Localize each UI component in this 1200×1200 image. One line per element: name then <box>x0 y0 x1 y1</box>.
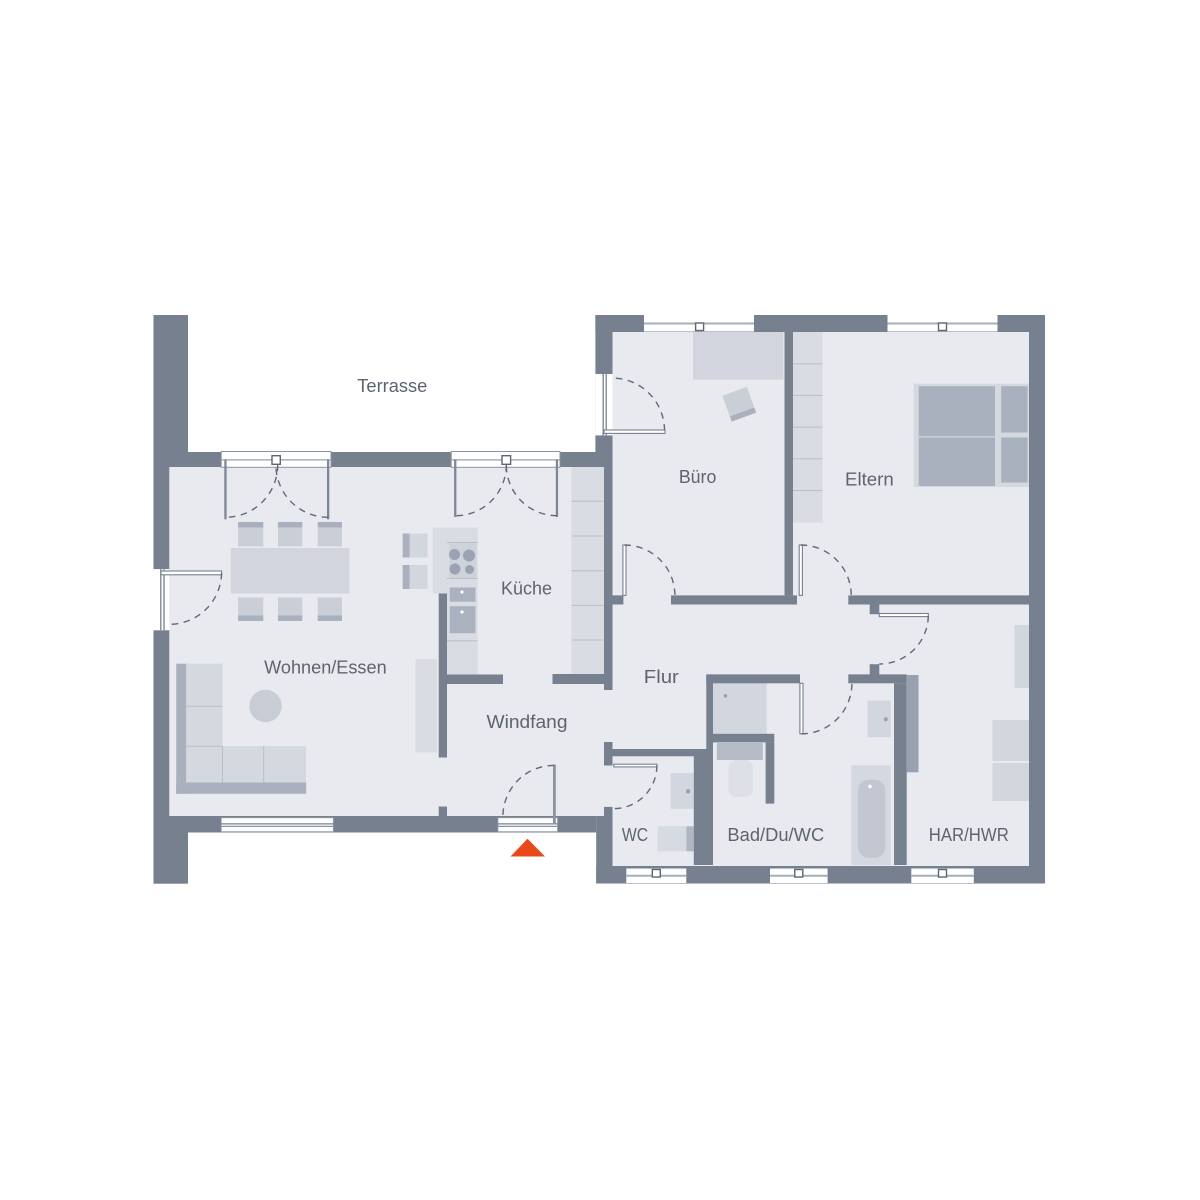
svg-text:Windfang: Windfang <box>487 712 568 732</box>
svg-text:Eltern: Eltern <box>845 470 894 490</box>
svg-text:Wohnen/Essen: Wohnen/Essen <box>264 658 387 678</box>
svg-text:WC: WC <box>622 825 648 845</box>
svg-text:Küche: Küche <box>501 579 552 599</box>
svg-text:Bad/Du/WC: Bad/Du/WC <box>727 825 824 845</box>
svg-text:HAR/HWR: HAR/HWR <box>929 825 1009 845</box>
svg-text:Flur: Flur <box>644 667 679 687</box>
svg-text:Terrasse: Terrasse <box>357 376 427 396</box>
svg-text:Büro: Büro <box>679 467 717 487</box>
